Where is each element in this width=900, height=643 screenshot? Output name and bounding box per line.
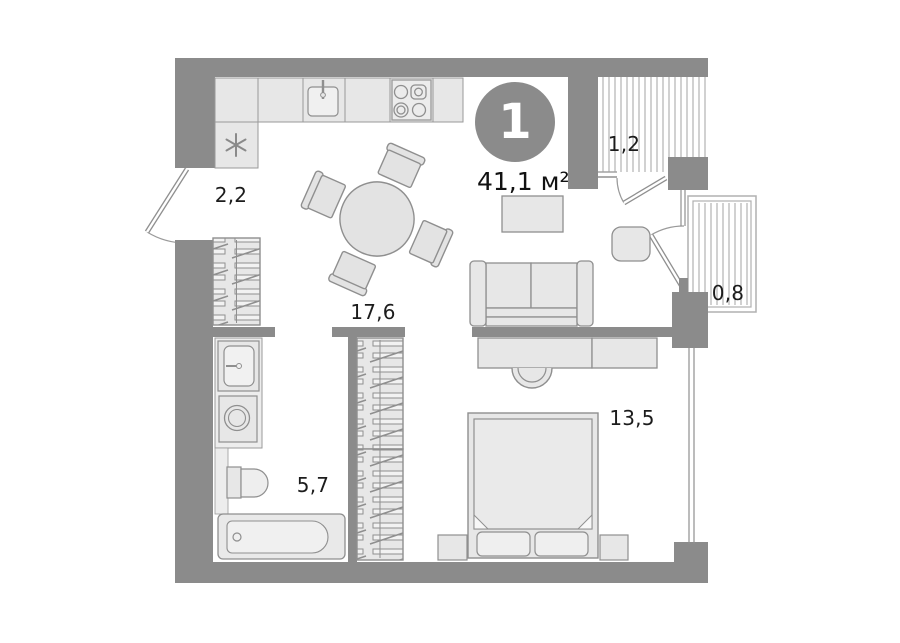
floorplan-drawing [0, 0, 900, 643]
wall-block-c [674, 542, 708, 583]
floorplan-canvas: 1 41,1 м² 2,2 1,2 0,8 17,6 5,7 13,5 [0, 0, 900, 643]
wall-bath-stub-right [332, 327, 405, 337]
toilet-bowl [241, 469, 268, 497]
wall-left-lower [175, 240, 213, 583]
room-label-living: 17,6 [350, 300, 395, 324]
bed [468, 413, 598, 558]
area-label: 41,1 м² [477, 167, 570, 196]
room-label-balcony-right: 0,8 [712, 281, 744, 305]
room-label-hallway: 2,2 [215, 183, 247, 207]
pillow [535, 532, 588, 556]
wall-left-upper [175, 58, 215, 168]
wall-door-nub [679, 278, 688, 292]
nightstand [438, 535, 467, 560]
room-label-balcony-top: 1,2 [608, 132, 640, 156]
washing-machine [219, 396, 257, 442]
nightstand [600, 535, 628, 560]
wall-block-a [668, 157, 708, 190]
wall-balcony-left [568, 77, 598, 189]
wall-bath-stub-left [213, 327, 275, 337]
bed-blanket [474, 419, 592, 529]
balcony-top-door [617, 178, 666, 203]
sofa-back [486, 317, 577, 326]
room-label-bathroom: 5,7 [297, 473, 329, 497]
room-label-bedroom: 13,5 [609, 406, 654, 430]
toilet-tank [227, 467, 241, 498]
toilet [215, 448, 268, 514]
pouf [612, 227, 650, 261]
wall-bath-right [348, 337, 357, 562]
dresser [592, 338, 657, 368]
bedroom-wardrobe [357, 338, 403, 560]
wall-bottom [175, 562, 708, 583]
sofa-cushion [486, 263, 531, 308]
bathtub [218, 514, 345, 559]
dining-set [278, 120, 476, 319]
desk-chair [512, 368, 552, 388]
desk [478, 338, 657, 368]
sofa [470, 261, 593, 326]
stove [392, 80, 431, 120]
entrance-door [147, 169, 187, 243]
sofa-back [486, 308, 577, 317]
sofa-cushion [531, 263, 577, 308]
wall-top [175, 58, 708, 77]
unit-badge: 1 [475, 82, 555, 162]
sofa-armrest [577, 261, 593, 326]
sofa-armrest [470, 261, 486, 326]
tv-stand [502, 196, 563, 232]
wall-block-b [672, 292, 708, 348]
wall-living-bedroom [472, 327, 677, 337]
pillow [477, 532, 530, 556]
hallway-wardrobe [213, 238, 260, 325]
faucet [237, 364, 242, 369]
